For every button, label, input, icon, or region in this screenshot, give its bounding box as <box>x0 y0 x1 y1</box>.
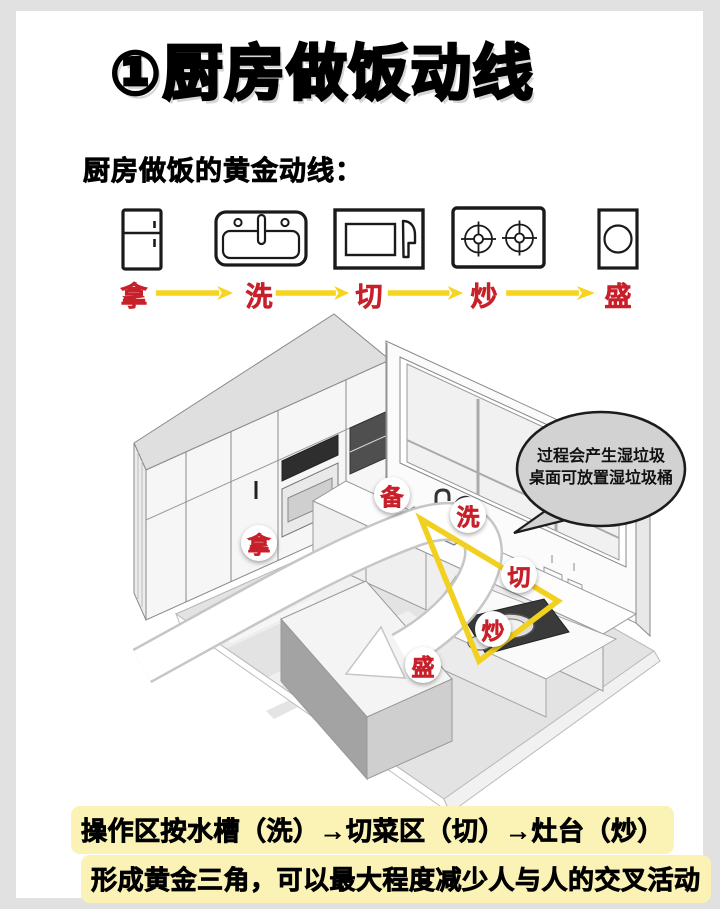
cooktop-counter <box>424 576 616 717</box>
arrow-right-icon <box>386 285 464 301</box>
zone-label-wash: 洗 <box>450 497 486 533</box>
speech-bubble-text: 过程会产生湿垃圾 桌面可放置湿垃圾桶 <box>515 446 687 490</box>
step-fry: 炒 <box>468 275 500 314</box>
footer-note: 操作区按水槽（洗）→切菜区（切）→灶台（炒） 形成黄金三角，可以最大程度减少人与… <box>71 806 711 903</box>
fridge-icon <box>121 208 163 271</box>
page-title: ①厨房做饭动线 <box>110 35 670 113</box>
sink-icon <box>214 208 308 269</box>
serving-bowl-icon <box>597 208 639 270</box>
footer-line2: 形成黄金三角，可以最大程度减少人与人的交叉活动 <box>81 855 711 903</box>
arrow-right-icon <box>504 285 596 301</box>
zone-label-stirfry: 炒 <box>475 611 511 647</box>
cutting-board-icon <box>333 208 425 270</box>
arrow-right-icon <box>154 285 234 301</box>
step-wash: 洗 <box>243 275 275 314</box>
zone-label-cut: 切 <box>501 557 537 593</box>
left-cabinet-wall <box>134 314 390 620</box>
arrow-right-icon <box>274 285 350 301</box>
step-serve: 盛 <box>602 275 634 314</box>
footer-line1: 操作区按水槽（洗）→切菜区（切）→灶台（炒） <box>71 806 674 854</box>
step-cut: 切 <box>353 275 385 314</box>
zone-label-prep: 备 <box>374 477 410 513</box>
speech-bubble-line2: 桌面可放置湿垃圾桶 <box>515 468 687 490</box>
zone-label-serve: 盛 <box>405 647 441 683</box>
infographic-page: ①厨房做饭动线 厨房做饭的黄金动线： <box>0 0 720 898</box>
stove-icon <box>451 206 546 269</box>
subtitle: 厨房做饭的黄金动线： <box>83 149 363 188</box>
infographic-card: ①厨房做饭动线 厨房做饭的黄金动线： <box>16 11 703 898</box>
speech-bubble-line1: 过程会产生湿垃圾 <box>515 446 687 468</box>
zone-label-take: 拿 <box>241 525 277 561</box>
step-take: 拿 <box>118 275 150 314</box>
